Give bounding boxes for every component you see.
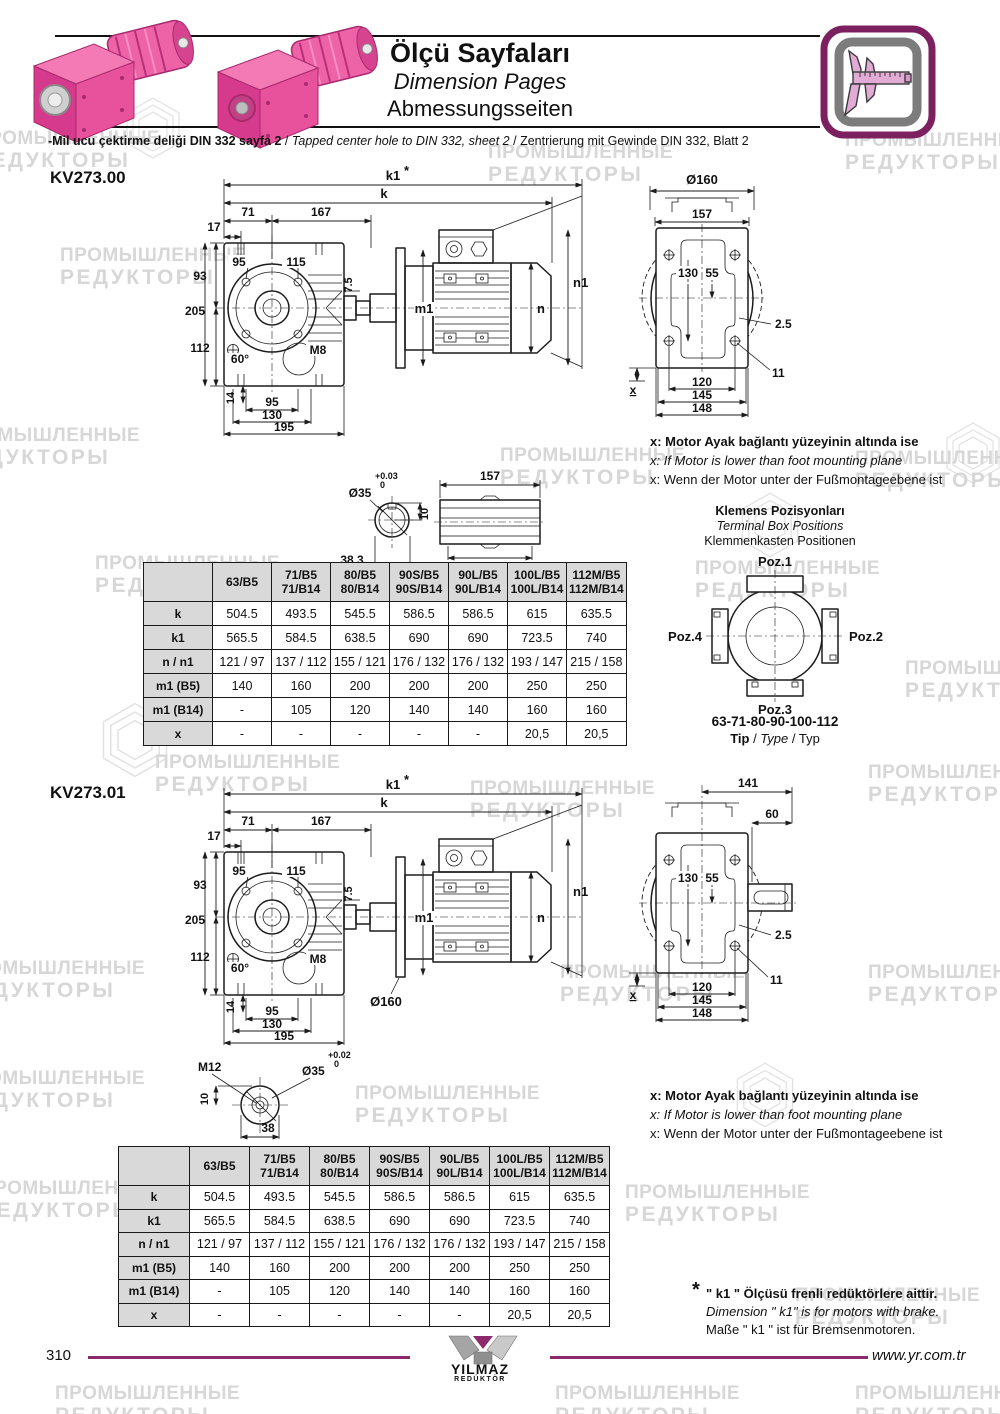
motor-outline	[344, 839, 551, 977]
logo-line2: REDÜKTÖR	[413, 1376, 547, 1384]
row-label: k	[119, 1186, 190, 1210]
row-label: m1 (B14)	[144, 698, 213, 722]
dimension-value-cell: 586.5	[430, 1186, 490, 1210]
dim-label: Ø35	[302, 1064, 325, 1078]
dimension-value-cell: -	[213, 698, 272, 722]
tip-label-de: Typ	[799, 731, 820, 746]
dim-label: 14	[225, 391, 237, 404]
dim-label: 157	[480, 469, 500, 483]
dimension-value-cell: 565.5	[190, 1209, 250, 1233]
dimension-value-cell: -	[190, 1303, 250, 1327]
side-view-drawing-kv273-01: k1 * k 71 167 17 95 115 93 205 112 60° M…	[186, 772, 596, 1046]
gearmotor-photo	[22, 14, 342, 154]
tip-label-en: Type	[760, 731, 788, 746]
type-range-values: 63-71-80-90-100-112	[675, 714, 875, 729]
dim-label: 7.5	[343, 886, 355, 901]
k1-footnote-de: Maße " k1 " ist für Bremsenmotoren.	[706, 1321, 939, 1339]
column-header: 71/B571/B14	[250, 1147, 310, 1186]
table-row: x-----20,520,5	[144, 722, 627, 746]
row-label: m1 (B5)	[144, 674, 213, 698]
dim-label: 38	[261, 1121, 275, 1135]
dimension-value-cell: 200	[390, 674, 449, 698]
dimension-value-cell: 200	[449, 674, 508, 698]
row-label: n / n1	[119, 1233, 190, 1257]
dimension-value-cell: -	[250, 1303, 310, 1327]
dimension-value-cell: 740	[550, 1209, 610, 1233]
terminal-box-title-tr: Klemens Pozisyonları	[680, 504, 880, 519]
column-header	[144, 563, 213, 602]
dim-label: 195	[274, 1029, 294, 1043]
poz4-label: Poz.4	[668, 629, 703, 644]
dim-label: k1	[386, 777, 400, 792]
dimension-value-cell: 193 / 147	[508, 650, 567, 674]
dim-label: *	[404, 163, 410, 178]
dim-label: 95	[232, 864, 246, 878]
table-row: m1 (B5)140160200200200250250	[119, 1256, 610, 1280]
dim-label: 205	[185, 304, 205, 318]
shaft-detail-kv273-01: M12 Ø35 +0.02 0 10 38	[182, 1043, 402, 1148]
dim-label: 10	[419, 508, 431, 520]
column-header: 112M/B5112M/B14	[567, 563, 627, 602]
shaft-side	[434, 496, 546, 548]
dim-label: 130	[678, 266, 698, 280]
dim-label: 60°	[231, 961, 249, 975]
dimension-value-cell: 504.5	[213, 602, 272, 626]
table-body: k504.5493.5545.5586.5586.5615635.5k1565.…	[144, 602, 627, 746]
dimension-value-cell: 493.5	[250, 1186, 310, 1210]
dim-label: 10	[199, 1093, 211, 1105]
dimension-value-cell: 740	[567, 626, 627, 650]
motor-top-view	[706, 570, 844, 702]
type-range: 63-71-80-90-100-112 Tip / Type / Typ	[675, 714, 875, 746]
dim-label: 14	[225, 1000, 237, 1013]
terminal-box-heading: Klemens Pozisyonları Terminal Box Positi…	[680, 504, 880, 549]
dim-label: 205	[185, 913, 205, 927]
motor-foot-note-de: x: Wenn der Motor unter der Fußmontageeb…	[650, 1124, 942, 1143]
dim-label: 157	[692, 207, 712, 221]
motor-outline	[344, 230, 551, 368]
dim-label: 55	[705, 266, 719, 280]
dimension-value-cell: 120	[310, 1280, 370, 1304]
dimension-value-cell: 545.5	[331, 602, 390, 626]
table-row: m1 (B5)140160200200200250250	[144, 674, 627, 698]
dimension-value-cell: -	[310, 1303, 370, 1327]
dim-label: 93	[193, 269, 207, 283]
dimension-value-cell: 565.5	[213, 626, 272, 650]
dim-label: 17	[207, 829, 221, 843]
table-row: k1565.5584.5638.5690690723.5740	[144, 626, 627, 650]
header-row: 63/B571/B571/B1480/B580/B1490S/B590S/B14…	[144, 563, 627, 602]
dim-label: 141	[738, 776, 758, 790]
dimension-labels: k1 * k 71 167 17 95 115 93 205 112 60° M…	[185, 163, 588, 434]
table-row: n / n1121 / 97137 / 112155 / 121176 / 13…	[119, 1233, 610, 1257]
dimension-value-cell: 20,5	[550, 1303, 610, 1327]
model-label-kv273-00: KV273.00	[50, 168, 126, 188]
dimension-value-cell: 20,5	[490, 1303, 550, 1327]
terminal-positions-drawing: Poz.1 Poz.2 Poz.3 Poz.4	[660, 552, 890, 720]
terminal-box-title-en: Terminal Box Positions	[680, 519, 880, 534]
dim-label: m1	[415, 301, 434, 316]
dimension-value-cell: 690	[430, 1209, 490, 1233]
dim-label: 2.5	[775, 928, 792, 942]
dim-label: 145	[692, 388, 712, 402]
tip-label-tr: Tip	[730, 731, 749, 746]
dim-label: 145	[692, 993, 712, 1007]
dimension-value-cell: 140	[213, 674, 272, 698]
dimension-value-cell: 493.5	[272, 602, 331, 626]
dimension-value-cell: 615	[508, 602, 567, 626]
dimension-value-cell: 193 / 147	[490, 1233, 550, 1257]
dim-label: x	[630, 383, 637, 397]
column-header: 90L/B590L/B14	[449, 563, 508, 602]
motor-foot-note-tr: x: Motor Ayak bağlantı yüzeyinin altında…	[650, 1086, 942, 1105]
k1-footnote-tr: " k1 " Ölçüsü frenli redüktörlere aittir…	[706, 1285, 939, 1303]
dimension-value-cell: 137 / 112	[272, 650, 331, 674]
dim-label: 95	[265, 1004, 279, 1018]
yilmaz-logo-text: YILMAZ REDÜKTÖR	[413, 1362, 547, 1384]
column-header: 112M/B5112M/B14	[550, 1147, 610, 1186]
dimension-value-cell: 160	[490, 1280, 550, 1304]
dim-label: 60	[765, 807, 779, 821]
k1-footnote-en: Dimension " k1" is for motors with brake…	[706, 1303, 939, 1321]
dim-label: 167	[311, 814, 331, 828]
dimension-value-cell: -	[449, 722, 508, 746]
dimension-value-cell: 690	[370, 1209, 430, 1233]
dim-label: n1	[573, 275, 588, 290]
model-label-kv273-01: KV273.01	[50, 783, 126, 803]
dimension-value-cell: 635.5	[550, 1186, 610, 1210]
gearmotor-left	[34, 17, 198, 142]
dimension-value-cell: 140	[449, 698, 508, 722]
yilmaz-logo-icon	[413, 1334, 547, 1364]
dimension-value-cell: 200	[370, 1256, 430, 1280]
dimension-value-cell: 723.5	[490, 1209, 550, 1233]
dimension-value-cell: 584.5	[272, 626, 331, 650]
watermark-text: ПРОМЫШЛЕННЫЕРЕДУКТОРЫ	[625, 1182, 810, 1226]
dim-label: 112	[190, 341, 210, 355]
dim-label: m1	[415, 910, 434, 925]
dim-label: 0	[380, 480, 385, 490]
dimension-value-cell: 140	[370, 1280, 430, 1304]
table-body: k504.5493.5545.5586.5586.5615635.5k1565.…	[119, 1186, 610, 1327]
dim-label: k	[380, 186, 388, 201]
dimension-value-cell: 120	[331, 698, 390, 722]
column-header: 63/B5	[213, 563, 272, 602]
footer-rule-left	[88, 1356, 410, 1359]
k1-footnote: * " k1 " Ölçüsü frenli redüktörlere aitt…	[706, 1285, 939, 1339]
dimension-value-cell: 121 / 97	[213, 650, 272, 674]
table-row: x-----20,520,5	[119, 1303, 610, 1327]
table-row: k504.5493.5545.5586.5586.5615635.5	[119, 1186, 610, 1210]
dim-label: 120	[692, 375, 712, 389]
gearbox-outline	[216, 235, 584, 394]
dimension-value-cell: 20,5	[508, 722, 567, 746]
dim-label: 11	[770, 973, 783, 987]
dimension-value-cell: 638.5	[310, 1209, 370, 1233]
dimension-value-cell: 176 / 132	[370, 1233, 430, 1257]
row-label: x	[119, 1303, 190, 1327]
header-note-tr: -Mil ucu çektirme deliği DIN 332 sayfa 2	[48, 134, 281, 148]
dimension-lines	[205, 179, 582, 436]
motor-foot-note: x: Motor Ayak bağlantı yüzeyinin altında…	[650, 1086, 942, 1143]
dimension-value-cell: 176 / 132	[390, 650, 449, 674]
logo-line1: YILMAZ	[413, 1362, 547, 1376]
caliper-icon	[820, 25, 936, 139]
dimension-value-cell: 155 / 121	[310, 1233, 370, 1257]
watermark-text: ПРОМЫШЛЕННЫЕРЕДУКТОРЫ	[0, 958, 145, 1002]
table-row: k504.5493.5545.5586.5586.5615635.5	[144, 602, 627, 626]
shaft-detail-kv273-00: Ø35 +0.03 0 10 38.3 157 132	[330, 456, 550, 576]
dim-label: x	[630, 988, 637, 1002]
dim-label: 95	[232, 255, 246, 269]
dim-label: k	[380, 795, 388, 810]
dimension-table-kv273-01: 63/B571/B571/B1480/B580/B1490S/B590S/B14…	[118, 1146, 610, 1327]
dimension-labels: k1 * k 71 167 17 95 115 93 205 112 60° M…	[185, 772, 588, 1043]
dimension-value-cell: 140	[430, 1280, 490, 1304]
column-header: 90L/B590L/B14	[430, 1147, 490, 1186]
header-row: 63/B571/B571/B1480/B580/B1490S/B590S/B14…	[119, 1147, 610, 1186]
dimension-value-cell: 160	[250, 1256, 310, 1280]
dimension-value-cell: -	[272, 722, 331, 746]
dimension-value-cell: 250	[490, 1256, 550, 1280]
dimension-value-cell: 250	[508, 674, 567, 698]
rear-view-drawing-kv273-01: 141 60 130 55 2.5 11 x 120 145 148	[615, 775, 805, 1041]
dimension-value-cell: 250	[567, 674, 627, 698]
dim-label: 130	[678, 871, 698, 885]
table-head: 63/B571/B571/B1480/B580/B1490S/B590S/B14…	[119, 1147, 610, 1186]
dim-label: 11	[772, 366, 785, 380]
watermark-text: ПРОМЫШЛЕННЫЕРЕДУКТОРЫ	[0, 1068, 145, 1112]
page-title-de: Abmessungsseiten	[320, 95, 640, 122]
column-header: 90S/B590S/B14	[370, 1147, 430, 1186]
dim-label: 93	[193, 878, 207, 892]
terminal-box-title-de: Klemmenkasten Positionen	[680, 534, 880, 549]
watermark-text: ПРОМЫШЛЕННЫЕРЕДУКТОРЫ	[855, 1383, 1000, 1414]
dimension-value-cell: -	[213, 722, 272, 746]
watermark-text: ПРОМЫШЛЕННЫЕРЕДУКТОРЫ	[905, 658, 1000, 702]
dim-label: *	[404, 772, 410, 787]
dimension-value-cell: 121 / 97	[190, 1233, 250, 1257]
watermark-text: ПРОМЫШЛЕННЫЕРЕДУКТОРЫ	[555, 1383, 740, 1414]
dim-label: 7.5	[343, 277, 355, 292]
watermark-text: ПРОМЫШЛЕННЫЕРЕДУКТОРЫ	[0, 425, 140, 469]
dimension-value-cell: 160	[272, 674, 331, 698]
table-row: m1 (B14)-105120140140160160	[119, 1280, 610, 1304]
dim-label: n	[537, 910, 545, 925]
dimension-value-cell: -	[430, 1303, 490, 1327]
website-url: www.yr.com.tr	[872, 1347, 966, 1364]
dimension-value-cell: 137 / 112	[250, 1233, 310, 1257]
dimension-value-cell: 635.5	[567, 602, 627, 626]
poz2-label: Poz.2	[849, 629, 883, 644]
dimension-value-cell: -	[331, 722, 390, 746]
dim-label: M12	[198, 1060, 222, 1074]
dimension-value-cell: 586.5	[449, 602, 508, 626]
column-header: 63/B5	[190, 1147, 250, 1186]
row-label: k1	[144, 626, 213, 650]
dimension-table-kv273-00: 63/B571/B571/B1480/B580/B1490S/B590S/B14…	[143, 562, 627, 746]
dim-label: 55	[705, 871, 719, 885]
dim-label: 17	[207, 220, 221, 234]
watermark-text: ПРОМЫШЛЕННЫЕРЕДУКТОРЫ	[868, 962, 1000, 1006]
asterisk-icon: *	[692, 1281, 700, 1299]
table-head: 63/B571/B571/B1480/B580/B1490S/B590S/B14…	[144, 563, 627, 602]
rear-view-drawing-kv273-00: Ø160 157 130 55 2.5 11 x 120 145 148	[615, 170, 805, 436]
row-label: m1 (B14)	[119, 1280, 190, 1304]
dimension-value-cell: 105	[250, 1280, 310, 1304]
dimension-value-cell: 200	[331, 674, 390, 698]
poz1-label: Poz.1	[758, 554, 792, 569]
dimension-value-cell: -	[370, 1303, 430, 1327]
dimension-value-cell: 690	[449, 626, 508, 650]
motor-foot-note: x: Motor Ayak bağlantı yüzeyinin altında…	[650, 432, 942, 489]
column-header: 80/B580/B14	[310, 1147, 370, 1186]
watermark-hex-icon	[940, 420, 1000, 486]
dimension-value-cell: 215 / 158	[567, 650, 627, 674]
dim-label: 195	[274, 420, 294, 434]
dim-label: n	[537, 301, 545, 316]
dimension-value-cell: 504.5	[190, 1186, 250, 1210]
dim-label: Ø35	[349, 486, 372, 500]
footer-rule-right	[550, 1356, 868, 1359]
column-header: 71/B571/B14	[272, 563, 331, 602]
dim-label: 115	[286, 864, 306, 878]
dim-label: +0.03	[375, 471, 398, 481]
dimension-value-cell: 584.5	[250, 1209, 310, 1233]
table-row: n / n1121 / 97137 / 112155 / 121176 / 13…	[144, 650, 627, 674]
row-label: n / n1	[144, 650, 213, 674]
page-number: 310	[46, 1347, 71, 1364]
row-label: k1	[119, 1209, 190, 1233]
dimension-value-cell: 160	[550, 1280, 610, 1304]
dim-label: M8	[310, 952, 327, 966]
dim-label: M8	[310, 343, 327, 357]
motor-foot-note-tr: x: Motor Ayak bağlantı yüzeyinin altında…	[650, 432, 942, 451]
dimension-value-cell: 176 / 132	[430, 1233, 490, 1257]
dim-label: k1	[386, 168, 400, 183]
dim-label: 148	[692, 1006, 712, 1020]
motor-foot-note-de: x: Wenn der Motor unter der Fußmontageeb…	[650, 470, 942, 489]
dimension-value-cell: 723.5	[508, 626, 567, 650]
dimension-value-cell: 690	[390, 626, 449, 650]
dim-label: 71	[241, 814, 255, 828]
dimension-value-cell: 200	[310, 1256, 370, 1280]
dimension-value-cell: 20,5	[567, 722, 627, 746]
motor-foot-note-en: x: If Motor is lower than foot mounting …	[650, 451, 942, 470]
dim-label: 115	[286, 255, 306, 269]
dim-label: 167	[311, 205, 331, 219]
column-header: 100L/B5100L/B14	[490, 1147, 550, 1186]
dim-label: 71	[241, 205, 255, 219]
dimension-value-cell: 545.5	[310, 1186, 370, 1210]
watermark-text: ПРОМЫШЛЕННЫЕРЕДУКТОРЫ	[868, 762, 1000, 806]
dimension-value-cell: 155 / 121	[331, 650, 390, 674]
dimension-value-cell: 105	[272, 698, 331, 722]
table-row: m1 (B14)-105120140140160160	[144, 698, 627, 722]
column-header: 100L/B5100L/B14	[508, 563, 567, 602]
dimension-value-cell: 140	[390, 698, 449, 722]
table-row: k1565.5584.5638.5690690723.5740	[119, 1209, 610, 1233]
header-note: -Mil ucu çektirme deliği DIN 332 sayfa 2…	[48, 134, 749, 148]
dimension-value-cell: 638.5	[331, 626, 390, 650]
dimension-value-cell: -	[190, 1280, 250, 1304]
dim-label: Ø160	[370, 994, 402, 1009]
dimension-value-cell: 176 / 132	[449, 650, 508, 674]
dimension-value-cell: 140	[190, 1256, 250, 1280]
dim-label: 60°	[231, 352, 249, 366]
catalog-page: ПРОМЫШЛЕННЫЕРЕДУКТОРЫ ПРОМЫШЛЕННЫЕРЕДУКТ…	[0, 0, 1000, 1414]
dimension-value-cell: 586.5	[390, 602, 449, 626]
dimension-value-cell: 215 / 158	[550, 1233, 610, 1257]
dim-label: 2.5	[775, 317, 792, 331]
dim-label: 0	[334, 1059, 339, 1069]
dim-label: 112	[190, 950, 210, 964]
dimension-value-cell: -	[390, 722, 449, 746]
column-header: 80/B580/B14	[331, 563, 390, 602]
header-note-en: Tapped center hole to DIN 332, sheet 2	[292, 134, 510, 148]
dim-label: 95	[265, 395, 279, 409]
side-view-drawing-kv273-00: k1 * k 71 167 17 95 115 93 205 112 60° M…	[186, 163, 596, 437]
dim-label: 120	[692, 980, 712, 994]
watermark-text: ПРОМЫШЛЕННЫЕРЕДУКТОРЫ	[55, 1383, 240, 1414]
dim-label: n1	[573, 884, 588, 899]
row-label: m1 (B5)	[119, 1256, 190, 1280]
motor-foot-note-en: x: If Motor is lower than foot mounting …	[650, 1105, 942, 1124]
dimension-value-cell: 586.5	[370, 1186, 430, 1210]
dimension-value-cell: 160	[508, 698, 567, 722]
row-label: k	[144, 602, 213, 626]
dimension-value-cell: 200	[430, 1256, 490, 1280]
gearbox-outline	[216, 844, 584, 1003]
dimension-value-cell: 615	[490, 1186, 550, 1210]
dim-label: 148	[692, 401, 712, 415]
row-label: x	[144, 722, 213, 746]
header-note-de: Zentrierung mit Gewinde DIN 332, Blatt 2	[520, 134, 749, 148]
dim-label: Ø160	[686, 172, 718, 187]
column-header: 90S/B590S/B14	[390, 563, 449, 602]
housing-outline	[639, 198, 765, 372]
dimension-value-cell: 160	[567, 698, 627, 722]
column-header	[119, 1147, 190, 1186]
dim-label: +0.02	[328, 1050, 351, 1060]
dimension-value-cell: 250	[550, 1256, 610, 1280]
